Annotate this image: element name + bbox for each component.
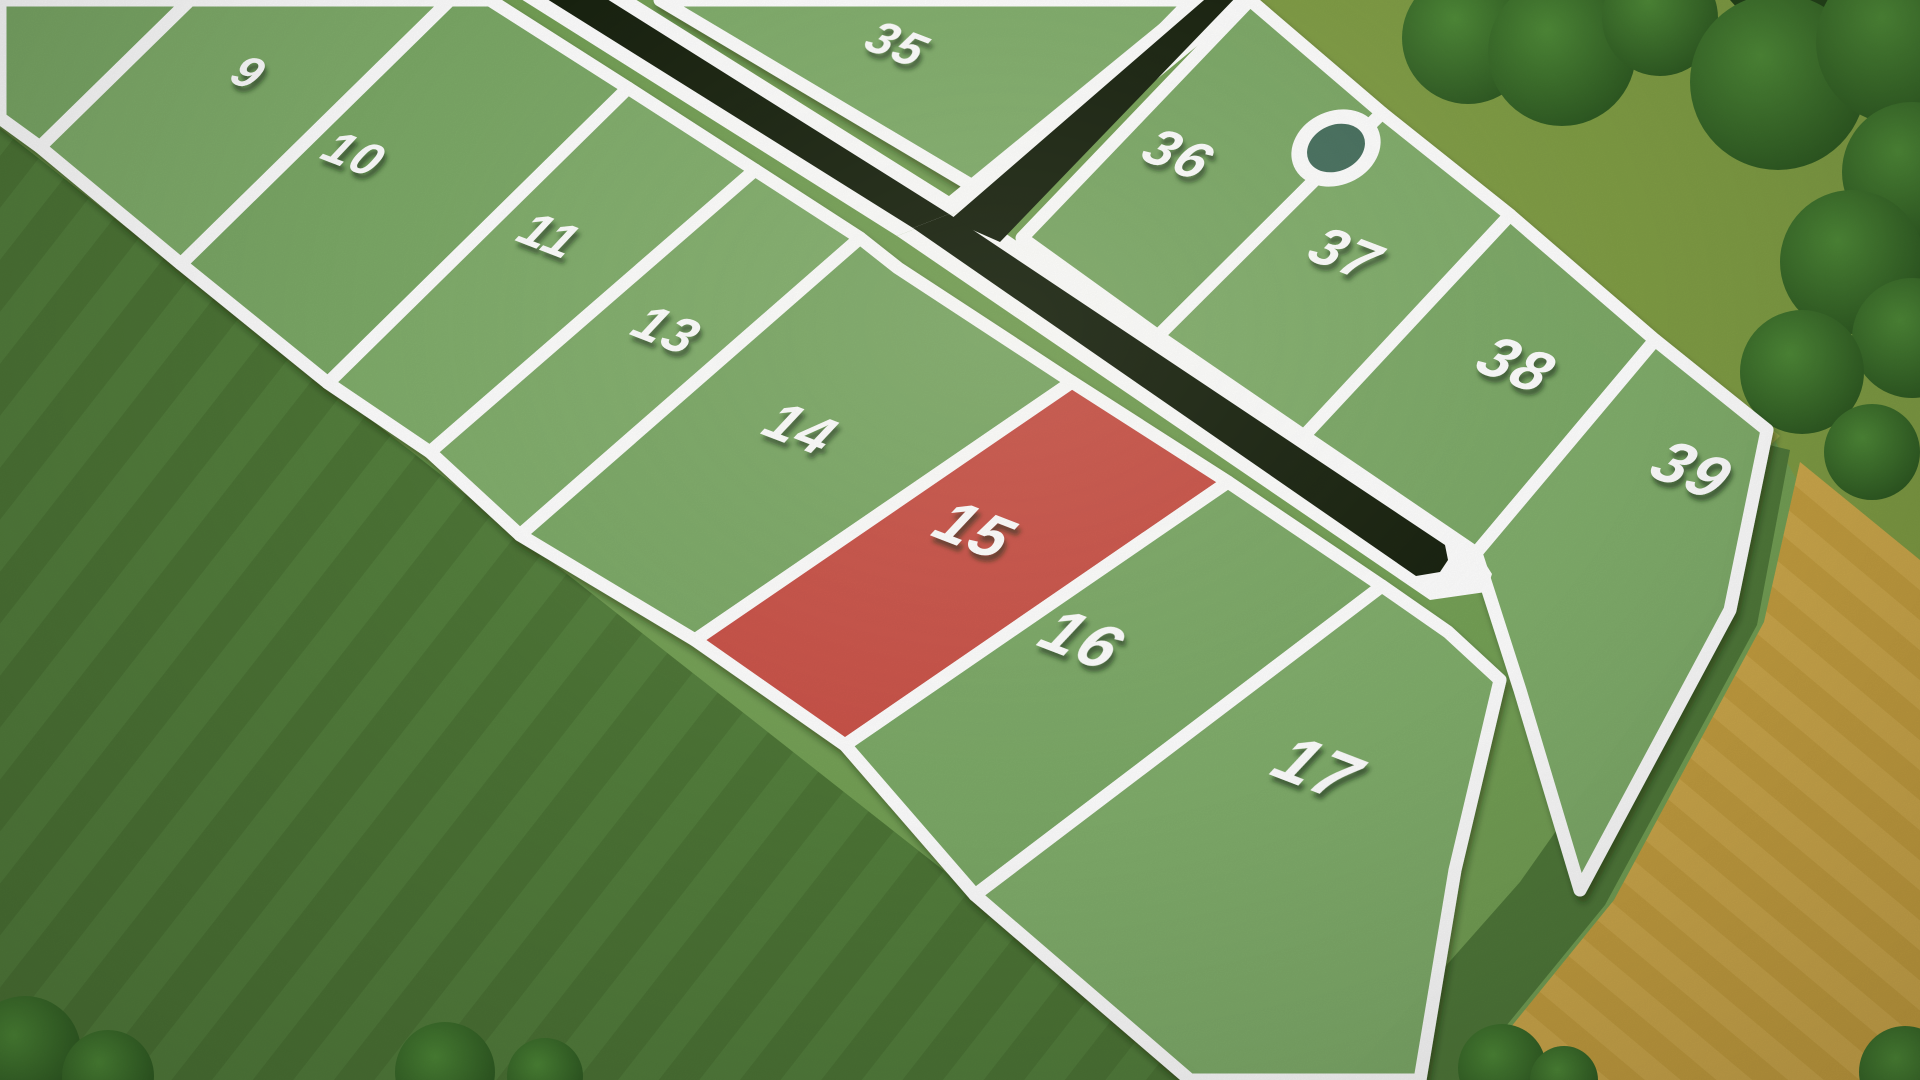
plot-map-screenshot: 89101113141516173536373839 — [0, 0, 1920, 1080]
photo-grain — [0, 0, 1920, 1080]
aerial-plot-map: 89101113141516173536373839 — [0, 0, 1920, 1080]
